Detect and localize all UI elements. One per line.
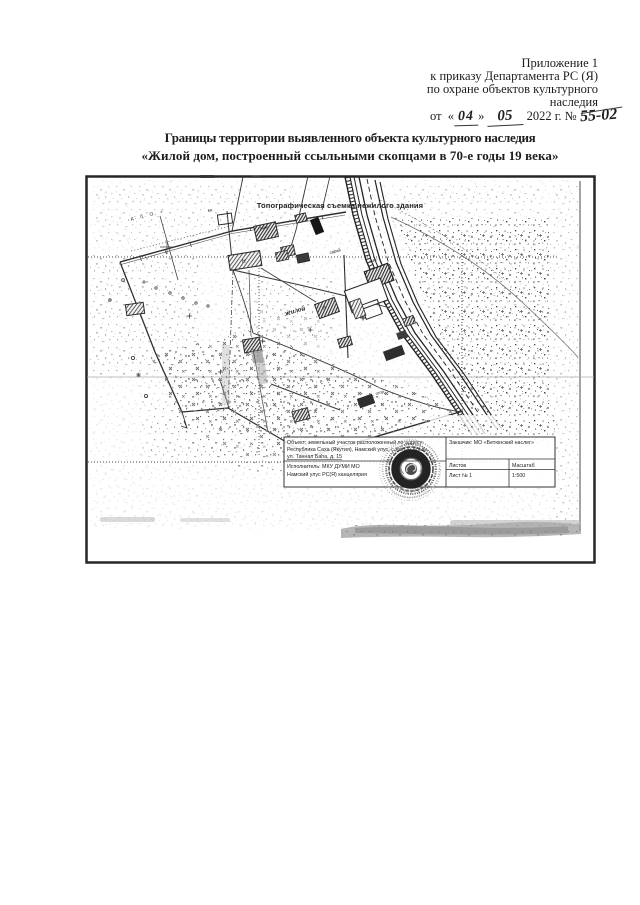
svg-text:Заказчик: МО «Бетюнский наслег: Заказчик: МО «Бетюнский наслег» (449, 439, 534, 446)
svg-text:Лист № 1: Лист № 1 (449, 473, 472, 479)
svg-text:Объект: земельный участок расп: Объект: земельный участок расположенный … (287, 439, 424, 446)
svg-text:Намский улус РС(Я) канцелярия: Намский улус РС(Я) канцелярия (287, 471, 367, 478)
svg-text:Исполнитель: МКУ ДУМИ МО: Исполнитель: МКУ ДУМИ МО (287, 464, 360, 470)
svg-text:1:500: 1:500 (512, 473, 525, 479)
svg-text:Н: Н (242, 259, 246, 265)
svg-text:Листов: Листов (449, 463, 466, 469)
svg-text:ул. Таннал Баha, д. 15: ул. Таннал Баha, д. 15 (287, 454, 342, 460)
svg-text:Масштаб: Масштаб (512, 463, 535, 469)
